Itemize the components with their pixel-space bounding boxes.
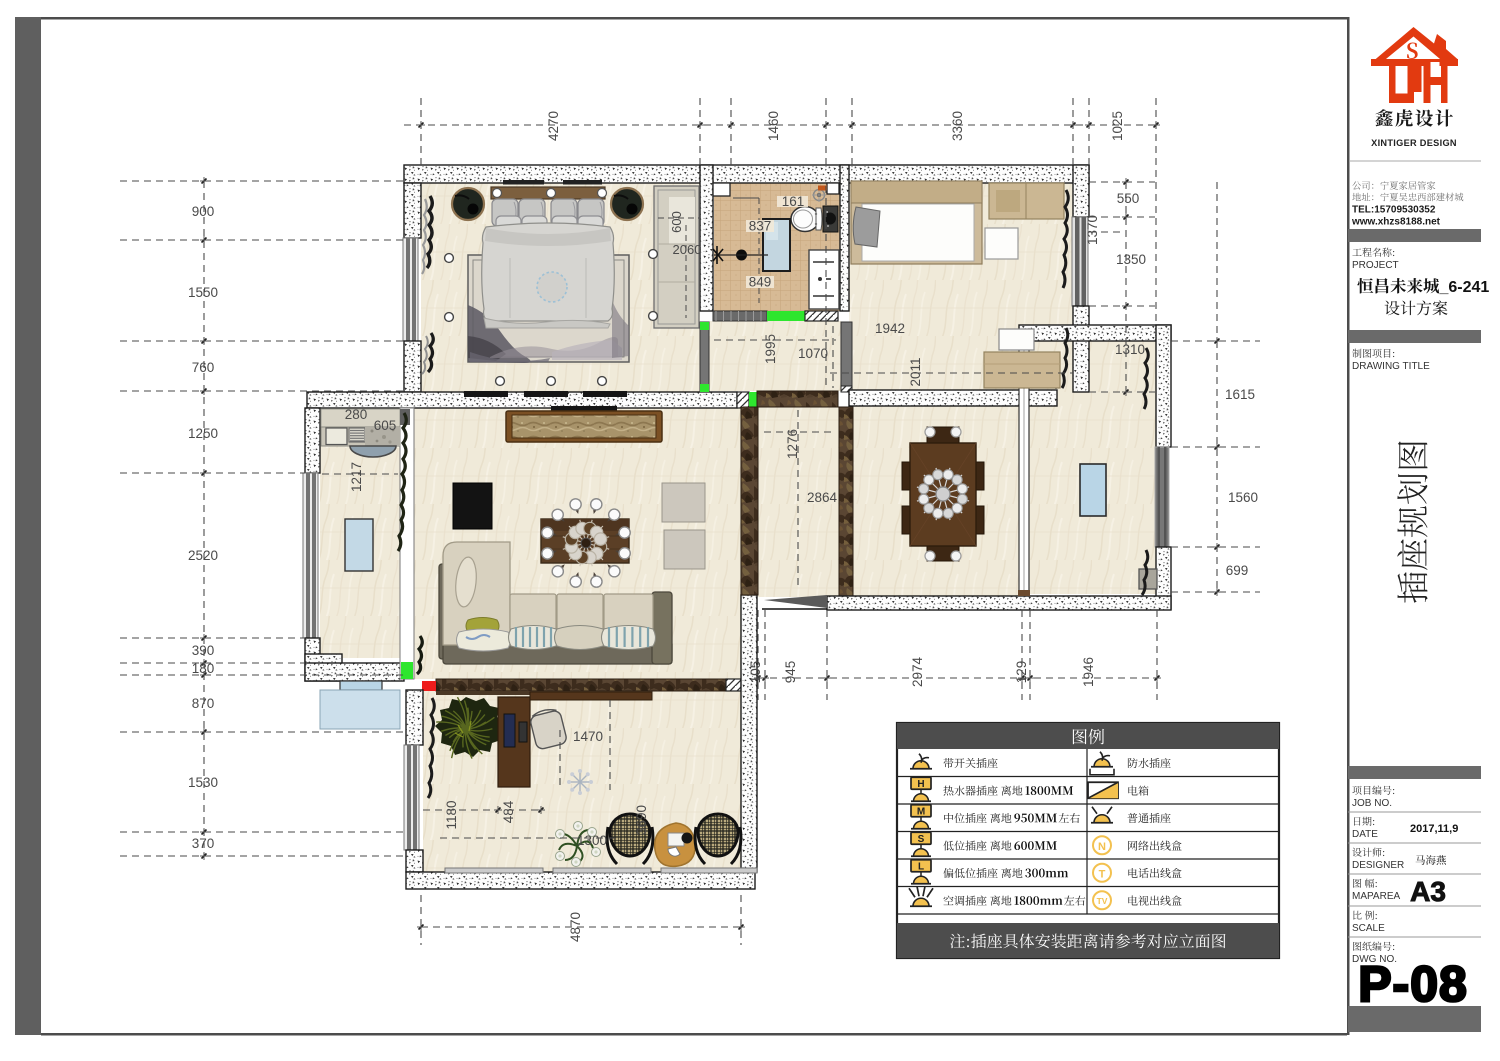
svg-text:2060: 2060 [673, 242, 702, 257]
svg-text:PROJECT: PROJECT [1352, 260, 1399, 271]
svg-text:1180: 1180 [444, 800, 459, 829]
svg-text:1995: 1995 [763, 334, 778, 364]
svg-text:L: L [918, 861, 924, 872]
svg-text:4270: 4270 [546, 111, 561, 141]
svg-text:1470: 1470 [573, 729, 603, 744]
svg-text:605: 605 [374, 418, 397, 433]
svg-text:1070: 1070 [798, 346, 828, 361]
svg-text:TV: TV [1097, 896, 1108, 906]
svg-text:_6-241: _6-241 [1439, 279, 1490, 296]
svg-text:N: N [1098, 841, 1106, 853]
svg-text:945: 945 [783, 661, 798, 684]
svg-text:DATE: DATE [1352, 829, 1378, 840]
svg-text:XINTIGER DESIGN: XINTIGER DESIGN [1371, 138, 1457, 148]
svg-text:1370: 1370 [1085, 215, 1100, 245]
svg-text:1300: 1300 [577, 833, 607, 848]
svg-text:849: 849 [749, 275, 772, 290]
svg-text:900: 900 [192, 204, 215, 219]
svg-text:A3: A3 [1410, 876, 1446, 907]
svg-text:TEL:15709530352: TEL:15709530352 [1352, 205, 1436, 216]
svg-text:1530: 1530 [188, 775, 218, 790]
svg-text:4870: 4870 [568, 912, 583, 942]
svg-text:2011: 2011 [908, 357, 923, 386]
svg-text:280: 280 [345, 407, 368, 422]
svg-text:180: 180 [192, 661, 215, 676]
svg-text:1350: 1350 [1116, 252, 1146, 267]
svg-text:DESIGNER: DESIGNER [1352, 860, 1404, 871]
svg-text:SCALE: SCALE [1352, 923, 1385, 934]
svg-text:370: 370 [192, 836, 215, 851]
svg-text:390: 390 [192, 643, 215, 658]
svg-text:2017,11,9: 2017,11,9 [1410, 823, 1458, 835]
svg-text:3690: 3690 [634, 805, 649, 835]
svg-text:1550: 1550 [188, 285, 218, 300]
svg-text:S: S [918, 834, 925, 845]
svg-text:1942: 1942 [875, 321, 905, 336]
svg-text:1217: 1217 [349, 462, 364, 492]
svg-text:1025: 1025 [1110, 111, 1125, 141]
svg-text:2520: 2520 [188, 548, 218, 563]
svg-text:760: 760 [192, 360, 215, 375]
svg-text:2974: 2974 [910, 656, 925, 687]
svg-text:161: 161 [782, 194, 805, 209]
svg-text:1276: 1276 [785, 429, 800, 459]
svg-text:3360: 3360 [950, 111, 965, 141]
svg-text:105: 105 [748, 661, 763, 684]
svg-text:www.xhzs8188.net: www.xhzs8188.net [1351, 217, 1441, 228]
svg-text:MAPAREA: MAPAREA [1352, 891, 1400, 902]
svg-text:1946: 1946 [1081, 657, 1096, 687]
svg-text:1460: 1460 [766, 111, 781, 141]
svg-text:1560: 1560 [1228, 490, 1258, 505]
svg-text:JOB NO.: JOB NO. [1352, 798, 1392, 809]
svg-text:H: H [917, 779, 924, 790]
svg-text:DRAWING TITLE: DRAWING TITLE [1352, 361, 1430, 372]
svg-text:2864: 2864 [807, 490, 838, 505]
svg-text:1310: 1310 [1115, 342, 1145, 357]
svg-text:600: 600 [669, 211, 684, 233]
svg-text:M: M [917, 806, 925, 817]
svg-text:484: 484 [501, 800, 516, 823]
svg-text:1615: 1615 [1225, 387, 1255, 402]
svg-text:870: 870 [192, 696, 215, 711]
svg-text:699: 699 [1226, 563, 1249, 578]
svg-text:129: 129 [1014, 661, 1029, 684]
svg-text:550: 550 [1117, 191, 1140, 206]
svg-text:1250: 1250 [188, 426, 218, 441]
svg-text:T: T [1099, 868, 1106, 880]
svg-text:837: 837 [749, 219, 772, 234]
svg-text:P-08: P-08 [1358, 956, 1468, 1012]
